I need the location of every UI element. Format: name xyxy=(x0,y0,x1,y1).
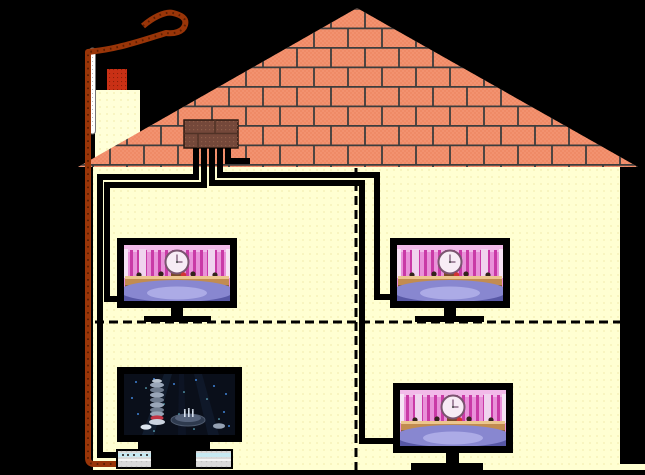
tv-stand-base xyxy=(415,316,484,322)
tv-stand-neck xyxy=(444,307,456,317)
tv-stand-base xyxy=(144,316,211,322)
tv-screen-gameshow xyxy=(396,390,510,447)
tv-screen-dark-studio xyxy=(124,374,235,435)
tv-stand-neck xyxy=(446,452,459,464)
ground-line xyxy=(93,470,645,474)
house-tv-distribution-diagram xyxy=(0,0,645,475)
tv-stand-base xyxy=(411,463,483,470)
tv-stand-pedestal xyxy=(151,448,196,468)
tv-stand-neck xyxy=(171,308,183,317)
ground-strip-right xyxy=(620,464,645,470)
tv-screen-gameshow xyxy=(393,245,507,302)
tv-screen-gameshow xyxy=(120,245,234,302)
chimney-pot-texture xyxy=(107,69,127,90)
diagram-canvas xyxy=(0,0,645,475)
distribution-amplifier xyxy=(184,120,238,148)
tv-stand-bar xyxy=(138,442,210,449)
